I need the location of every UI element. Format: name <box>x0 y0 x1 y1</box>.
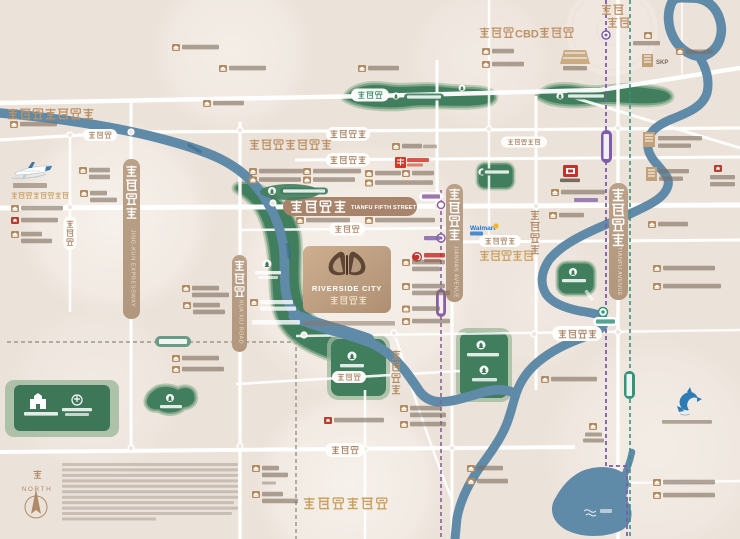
svg-text:HUA XIU ROAD: HUA XIU ROAD <box>238 300 244 345</box>
svg-text:TIANFU AVENUE: TIANFU AVENUE <box>616 247 622 296</box>
svg-text:Walmart: Walmart <box>470 225 496 232</box>
svg-text:RIVERSIDE CITY: RIVERSIDE CITY <box>312 284 382 293</box>
svg-text:JIANNAN AVENUE: JIANNAN AVENUE <box>453 246 459 299</box>
svg-text:SKP: SKP <box>656 60 668 66</box>
svg-text:JING-KUN EXPRESSWAY: JING-KUN EXPRESSWAY <box>130 230 136 308</box>
svg-text:TIANFU FIFTH STREET: TIANFU FIFTH STREET <box>351 205 417 211</box>
svg-text:NORTH: NORTH <box>22 486 53 493</box>
svg-text:CBD: CBD <box>515 29 539 41</box>
